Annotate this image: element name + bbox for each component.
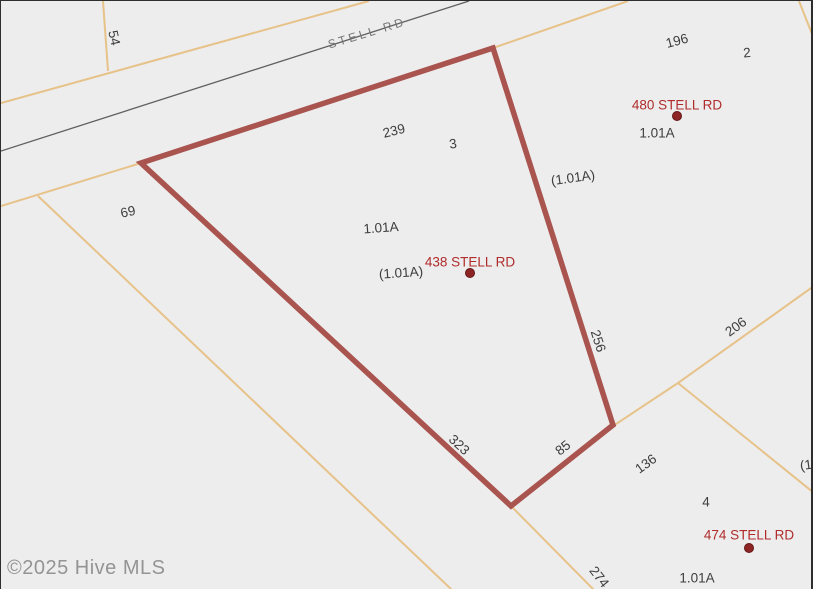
area-label-438: 1.01A [363, 220, 399, 236]
lot-label-2: 2 [743, 46, 752, 60]
highlighted-parcel-outline-group [141, 48, 613, 506]
road-north-edge-line [1, 1, 369, 103]
highlighted-parcel-outline[interactable] [141, 48, 613, 506]
parcel-marker-474[interactable] [744, 543, 754, 553]
dim-label-69: 69 [119, 204, 137, 220]
lot4-northeast-boundary [678, 383, 813, 493]
parcel-boundary-lines [1, 1, 813, 589]
parcel-marker-480[interactable] [672, 111, 682, 121]
mls-watermark: ©2025 Hive MLS [7, 557, 165, 580]
area-label-474: 1.01A [679, 571, 714, 585]
parcel-map-canvas[interactable]: STELL RD546923931962480 STELL RD1.01A(1.… [0, 0, 813, 589]
dim-label-54: 54 [106, 29, 122, 47]
address-label-480-stell-rd: 480 STELL RD [632, 98, 722, 112]
parcel-map-layers [1, 1, 813, 589]
parcel-marker-438[interactable] [465, 268, 475, 278]
address-label-474-stell-rd: 474 STELL RD [704, 528, 794, 542]
dim-206-boundary-line [678, 286, 813, 383]
top-right-corner-line [799, 1, 813, 39]
lot-label-4: 4 [702, 495, 710, 509]
address-label-438-stell-rd: 438 STELL RD [425, 255, 515, 269]
area-label-paren-438: (1.01A) [378, 265, 423, 282]
area-label-480: 1.01A [639, 126, 674, 140]
